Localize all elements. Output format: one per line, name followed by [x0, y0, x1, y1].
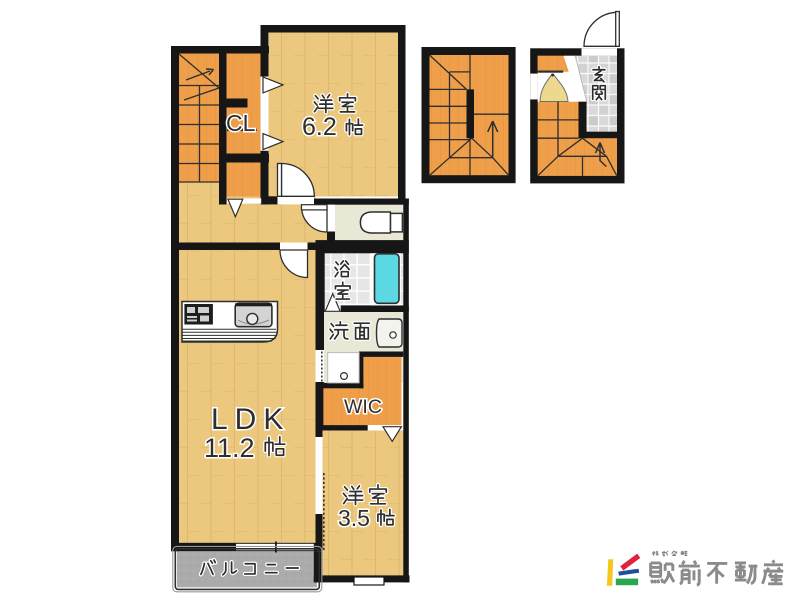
svg-text:CL: CL: [226, 110, 256, 136]
svg-text:WIC: WIC: [344, 396, 382, 418]
svg-text:LDK: LDK: [211, 403, 290, 436]
svg-text:6.2: 6.2: [302, 113, 337, 141]
svg-text:11.2: 11.2: [204, 433, 255, 463]
svg-text:3.5: 3.5: [338, 505, 370, 531]
